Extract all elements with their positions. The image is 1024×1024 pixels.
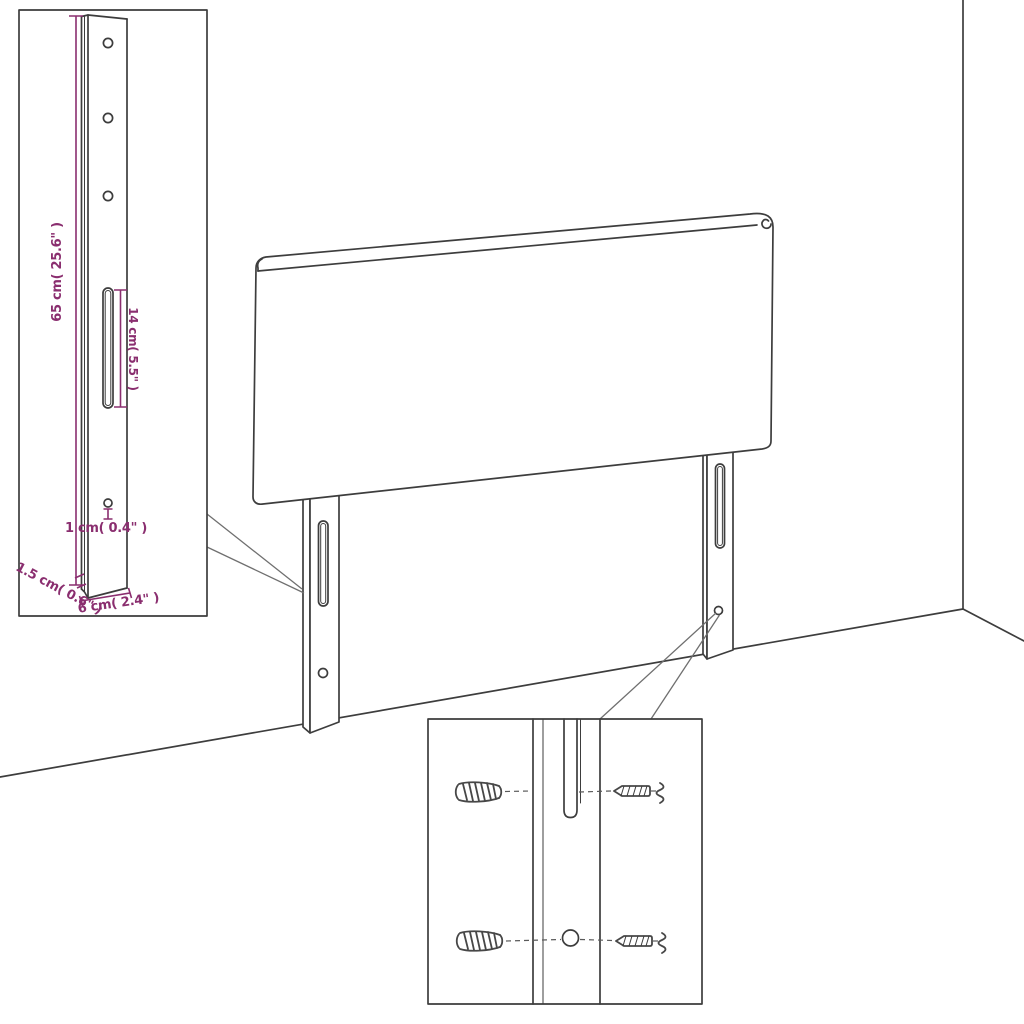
dim-label-hole-diameter: 1 cm( 0.4" ) bbox=[65, 521, 147, 536]
left-leg-side-face bbox=[303, 495, 310, 733]
floor-line-right bbox=[963, 609, 1024, 641]
callout-wedge-screw-detail bbox=[600, 613, 720, 719]
left-leg-slot bbox=[319, 521, 329, 606]
inset-screw-border bbox=[428, 719, 702, 1004]
headboard-panel-face bbox=[253, 213, 773, 504]
headboard-panel bbox=[253, 213, 773, 504]
headboard-right-leg bbox=[703, 448, 733, 659]
dim-label-leg-height: 65 cm( 25.6" ) bbox=[50, 222, 65, 321]
right-leg-slot bbox=[716, 464, 725, 548]
inset-leg-detail: 65 cm( 25.6" ) 14 cm( 5.5" ) 1 cm( 0.4" … bbox=[13, 10, 207, 618]
callout-wedge-left-leg bbox=[207, 514, 304, 593]
assembly-diagram-page: 65 cm( 25.6" ) 14 cm( 5.5" ) 1 cm( 0.4" … bbox=[0, 0, 1024, 1024]
inset-screw-detail bbox=[428, 719, 702, 1004]
assembly-diagram-canvas: 65 cm( 25.6" ) 14 cm( 5.5" ) 1 cm( 0.4" … bbox=[0, 0, 1024, 1024]
dim-label-slot-length: 14 cm( 5.5" ) bbox=[126, 307, 140, 390]
headboard-left-leg bbox=[303, 492, 339, 733]
